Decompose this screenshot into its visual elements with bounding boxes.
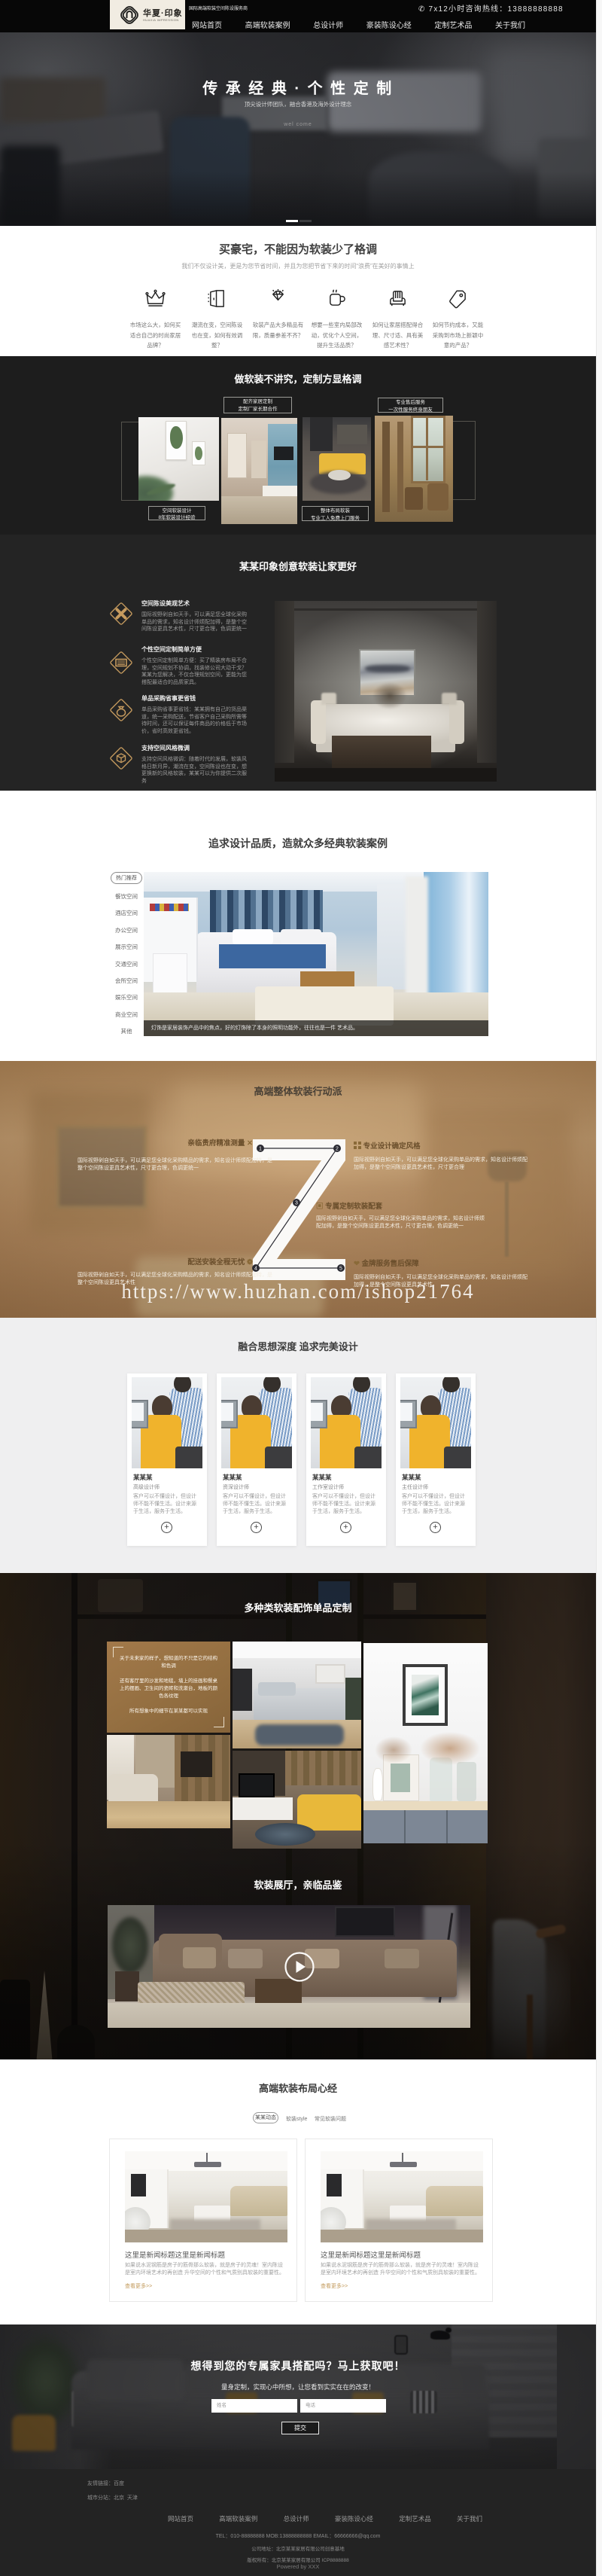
- svg-text:2: 2: [336, 1147, 339, 1152]
- svg-text:3: 3: [295, 1201, 298, 1206]
- svg-text:5: 5: [339, 1267, 342, 1272]
